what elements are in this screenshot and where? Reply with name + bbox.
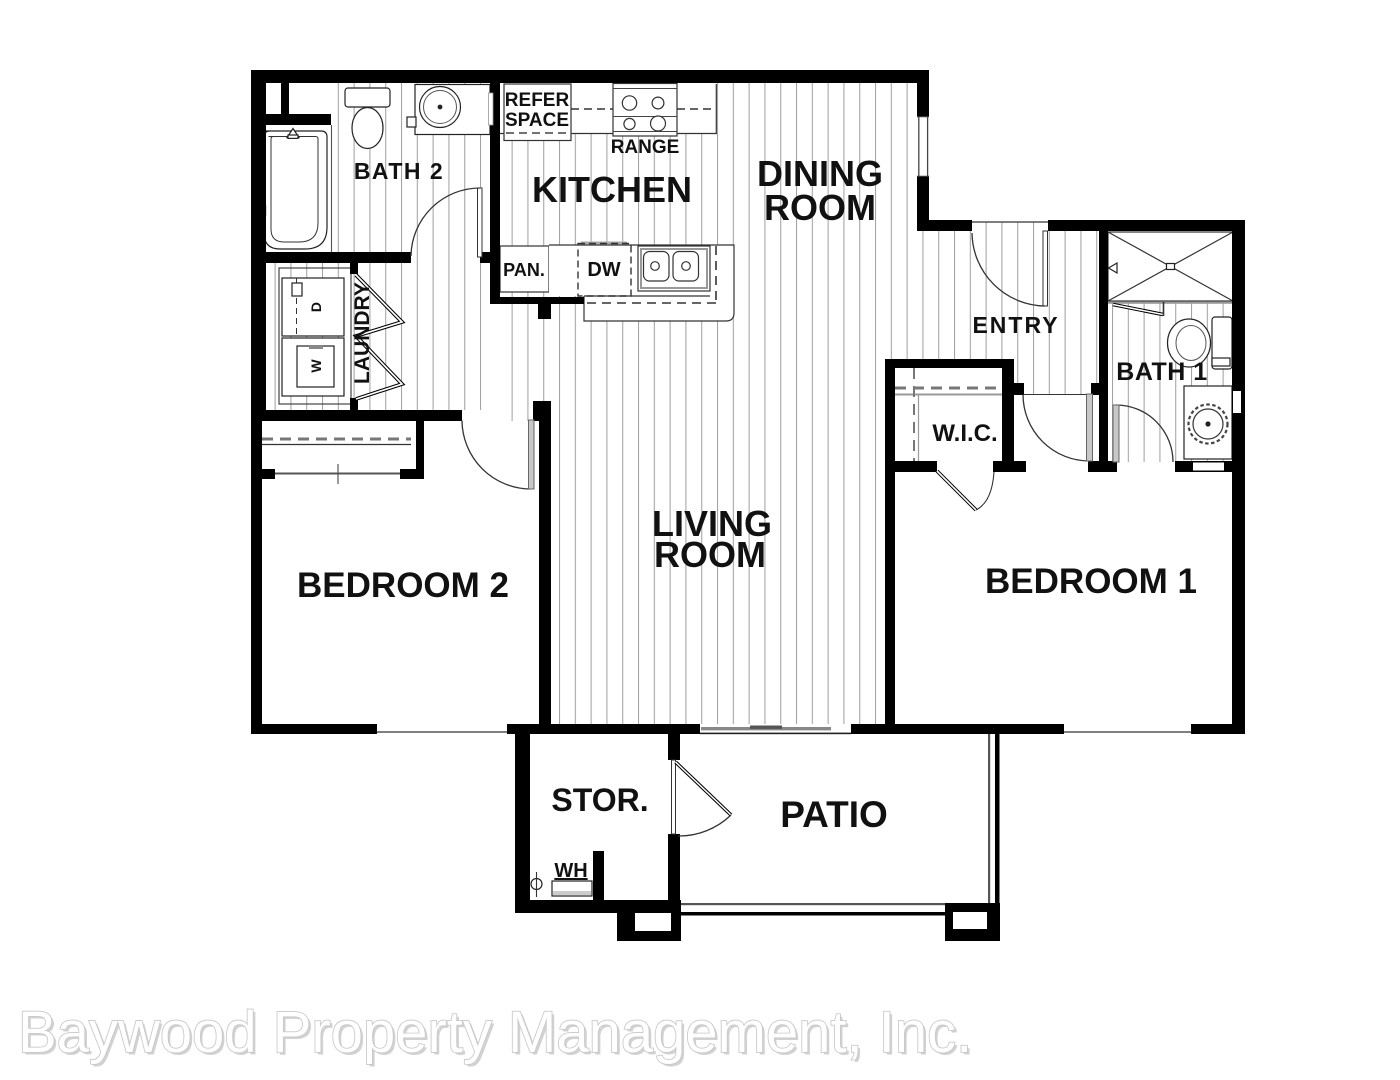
svg-text:BEDROOM 1: BEDROOM 1 [985,562,1197,601]
svg-text:ENTRY: ENTRY [972,312,1059,338]
svg-text:BATH 2: BATH 2 [354,158,444,184]
svg-text:Baywood Property Management, I: Baywood Property Management, Inc. [18,1000,972,1065]
svg-text:SPACE: SPACE [505,110,569,131]
svg-text:LAUNDRY: LAUNDRY [351,282,374,384]
svg-text:WH: WH [554,860,587,882]
svg-text:BEDROOM 2: BEDROOM 2 [297,566,509,605]
svg-text:PAN.: PAN. [503,260,545,280]
svg-text:STOR.: STOR. [551,782,648,818]
svg-text:RANGE: RANGE [611,137,680,158]
svg-text:W.I.C.: W.I.C. [932,420,997,447]
svg-text:BATH 1: BATH 1 [1116,358,1207,386]
svg-text:KITCHEN: KITCHEN [532,169,692,210]
svg-text:PATIO: PATIO [780,794,888,835]
svg-text:W: W [308,359,324,373]
svg-text:REFER: REFER [505,90,570,111]
svg-text:ROOM: ROOM [654,534,766,575]
svg-text:D: D [308,302,324,312]
svg-text:DW: DW [587,259,620,281]
svg-text:ROOM: ROOM [764,187,876,228]
